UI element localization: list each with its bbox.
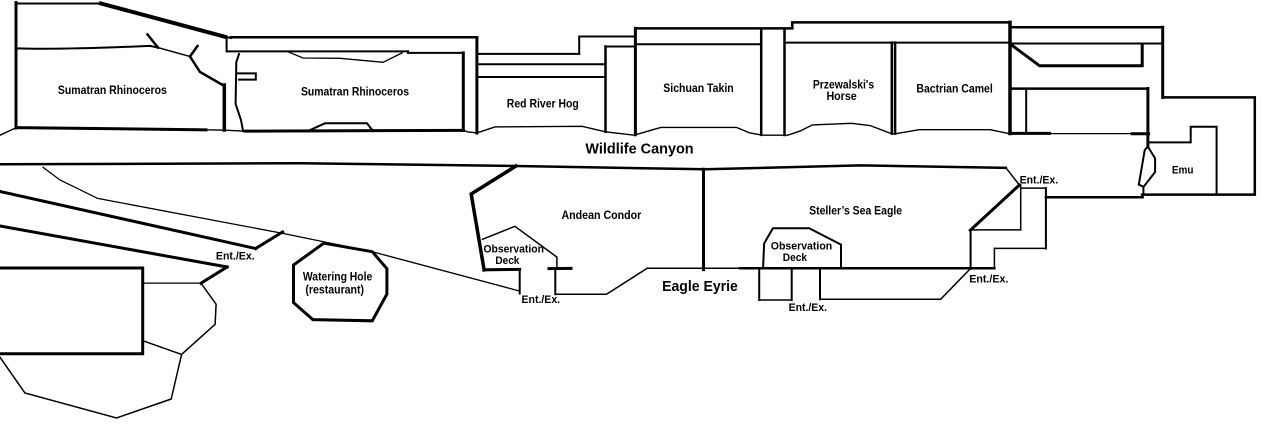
svg-text:Deck: Deck <box>783 252 808 264</box>
svg-text:Wildlife Canyon: Wildlife Canyon <box>585 142 693 158</box>
svg-text:Andean Condor: Andean Condor <box>561 208 641 222</box>
svg-text:Eagle Eyrie: Eagle Eyrie <box>662 279 738 295</box>
svg-text:Red River Hog: Red River Hog <box>507 96 579 110</box>
svg-text:Ent./Ex.: Ent./Ex. <box>789 302 827 314</box>
svg-text:Observation: Observation <box>483 244 544 256</box>
svg-text:Ent./Ex.: Ent./Ex. <box>969 274 1008 286</box>
svg-text:Emu: Emu <box>1172 165 1194 177</box>
svg-text:Sumatran Rhinoceros: Sumatran Rhinoceros <box>58 83 167 97</box>
svg-text:Ent./Ex.: Ent./Ex. <box>1020 174 1059 186</box>
svg-text:Bactrian Camel: Bactrian Camel <box>916 81 992 95</box>
svg-text:Watering Hole: Watering Hole <box>303 269 373 283</box>
svg-text:(restaurant): (restaurant) <box>305 282 364 296</box>
svg-text:Deck: Deck <box>495 255 520 267</box>
svg-text:Ent./Ex.: Ent./Ex. <box>216 251 255 263</box>
svg-text:Sumatran Rhinoceros: Sumatran Rhinoceros <box>301 84 409 98</box>
svg-text:Ent./Ex.: Ent./Ex. <box>522 294 561 306</box>
svg-text:Horse: Horse <box>826 89 856 103</box>
svg-text:Steller’s Sea Eagle: Steller’s Sea Eagle <box>809 204 902 218</box>
svg-text:Sichuan Takin: Sichuan Takin <box>663 81 733 95</box>
svg-text:Observation: Observation <box>771 240 832 252</box>
